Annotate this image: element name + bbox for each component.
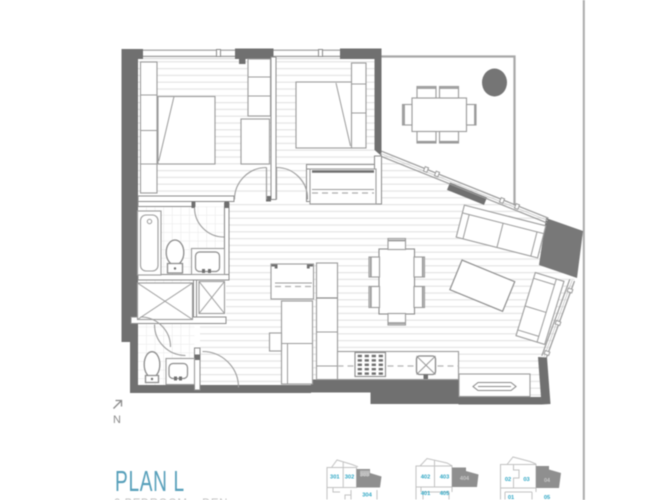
svg-text:05: 05 — [544, 495, 550, 500]
svg-text:304: 304 — [362, 492, 372, 498]
svg-text:PLAN L: PLAN L — [115, 466, 185, 498]
svg-text:01: 01 — [508, 495, 514, 500]
svg-text:04: 04 — [544, 478, 551, 484]
svg-text:402: 402 — [421, 474, 431, 480]
svg-text:03: 03 — [523, 477, 529, 483]
svg-text:403: 403 — [440, 474, 450, 480]
svg-text:302: 302 — [345, 474, 355, 480]
svg-text:404: 404 — [460, 476, 470, 482]
svg-text:N: N — [113, 414, 121, 426]
svg-text:02: 02 — [505, 477, 511, 483]
svg-text:303: 303 — [360, 473, 369, 479]
svg-text:401: 401 — [421, 491, 431, 497]
svg-text:405: 405 — [440, 491, 450, 497]
svg-text:301: 301 — [330, 474, 340, 480]
